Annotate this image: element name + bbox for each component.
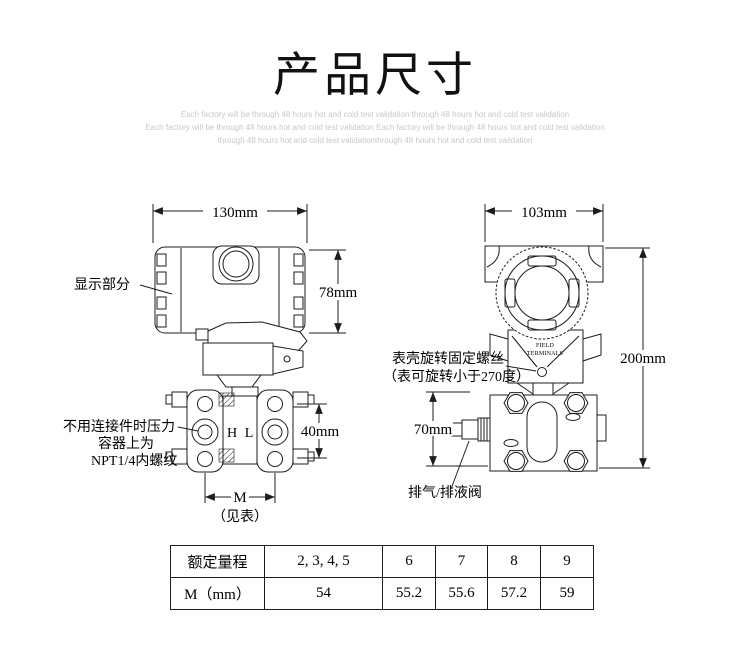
- range-spec-table: 额定量程 2, 3, 4, 5 6 7 8 9 M（mm） 54 55.2 55…: [170, 545, 594, 610]
- front-view-drawing: 103mm: [383, 202, 668, 501]
- front-height-dim-label: 200mm: [620, 351, 666, 367]
- leader-line: [451, 441, 469, 489]
- table-cell-range-7: 7: [436, 546, 488, 578]
- table-cell-range-6: 6: [383, 546, 436, 578]
- side-tab: [597, 415, 606, 441]
- bolt-span-dimension: M （见表）: [205, 473, 275, 525]
- side-height-dim-label: 78mm: [319, 285, 358, 301]
- display-cover-front: [496, 247, 588, 339]
- rotation-note-line1: 表壳旋转固定螺丝: [392, 350, 504, 367]
- side-view-drawing: 130mm: [63, 202, 359, 525]
- dimension-drawing: 130mm: [0, 0, 750, 545]
- rotation-note-line2: （表可旋转小于270度）: [383, 369, 530, 385]
- front-flange-dim-label: 70mm: [414, 422, 453, 438]
- process-flange-side: H L: [166, 390, 314, 472]
- table-cell-range-8: 8: [488, 546, 541, 578]
- span-dim-label: M: [233, 490, 246, 506]
- table-cell-m-552: 55.2: [383, 578, 436, 610]
- field-terminals-line2: TERMINALS: [527, 351, 563, 357]
- product-dimensions-page: 产品尺寸 Each factory will be through 48 hou…: [0, 0, 750, 645]
- table-cell-m-572: 57.2: [488, 578, 541, 610]
- process-flange-front: [490, 393, 606, 472]
- side-width-dimension: 130mm: [153, 202, 307, 243]
- high-port-label: H: [227, 426, 237, 441]
- low-port-label: L: [245, 426, 254, 441]
- table-row: 额定量程 2, 3, 4, 5 6 7 8 9: [171, 546, 594, 578]
- table-cell-m-556: 55.6: [436, 578, 488, 610]
- side-width-dim-label: 130mm: [212, 205, 258, 221]
- npt-note-line2: 容器上为: [98, 435, 154, 452]
- display-part-label: 显示部分: [74, 277, 130, 293]
- table-row: M（mm） 54 55.2 55.6 57.2 59: [171, 578, 594, 610]
- table-cell-range-9: 9: [541, 546, 594, 578]
- table-cell-range-2345: 2, 3, 4, 5: [265, 546, 383, 578]
- case-fixing-screw: [538, 368, 547, 377]
- field-terminals-line1: FIELD: [536, 343, 554, 349]
- vent-drain-valve: [452, 418, 490, 441]
- front-width-dimension: 103mm: [485, 202, 603, 242]
- table-cell-m-59: 59: [541, 578, 594, 610]
- vent-valve-callout: 排气/排液阀: [408, 441, 482, 501]
- table-cell-m-header: M（mm）: [171, 578, 265, 610]
- neck-bracket-side: [196, 322, 307, 396]
- npt-note-line3: NPT1/4内螺纹: [91, 453, 177, 469]
- front-height-dimension: 200mm: [599, 248, 668, 468]
- table-cell-range-header: 额定量程: [171, 546, 265, 578]
- side-flange-dim-label: 40mm: [301, 424, 340, 440]
- vent-valve-label: 排气/排液阀: [408, 485, 482, 501]
- table-cell-m-54: 54: [265, 578, 383, 610]
- see-table-note: （见表）: [212, 509, 268, 525]
- side-height-dimension: 78mm: [309, 250, 359, 333]
- npt-note-line1: 不用连接件时压力: [63, 418, 175, 435]
- transmitter-housing-side: [155, 246, 305, 333]
- front-width-dim-label: 103mm: [521, 205, 567, 221]
